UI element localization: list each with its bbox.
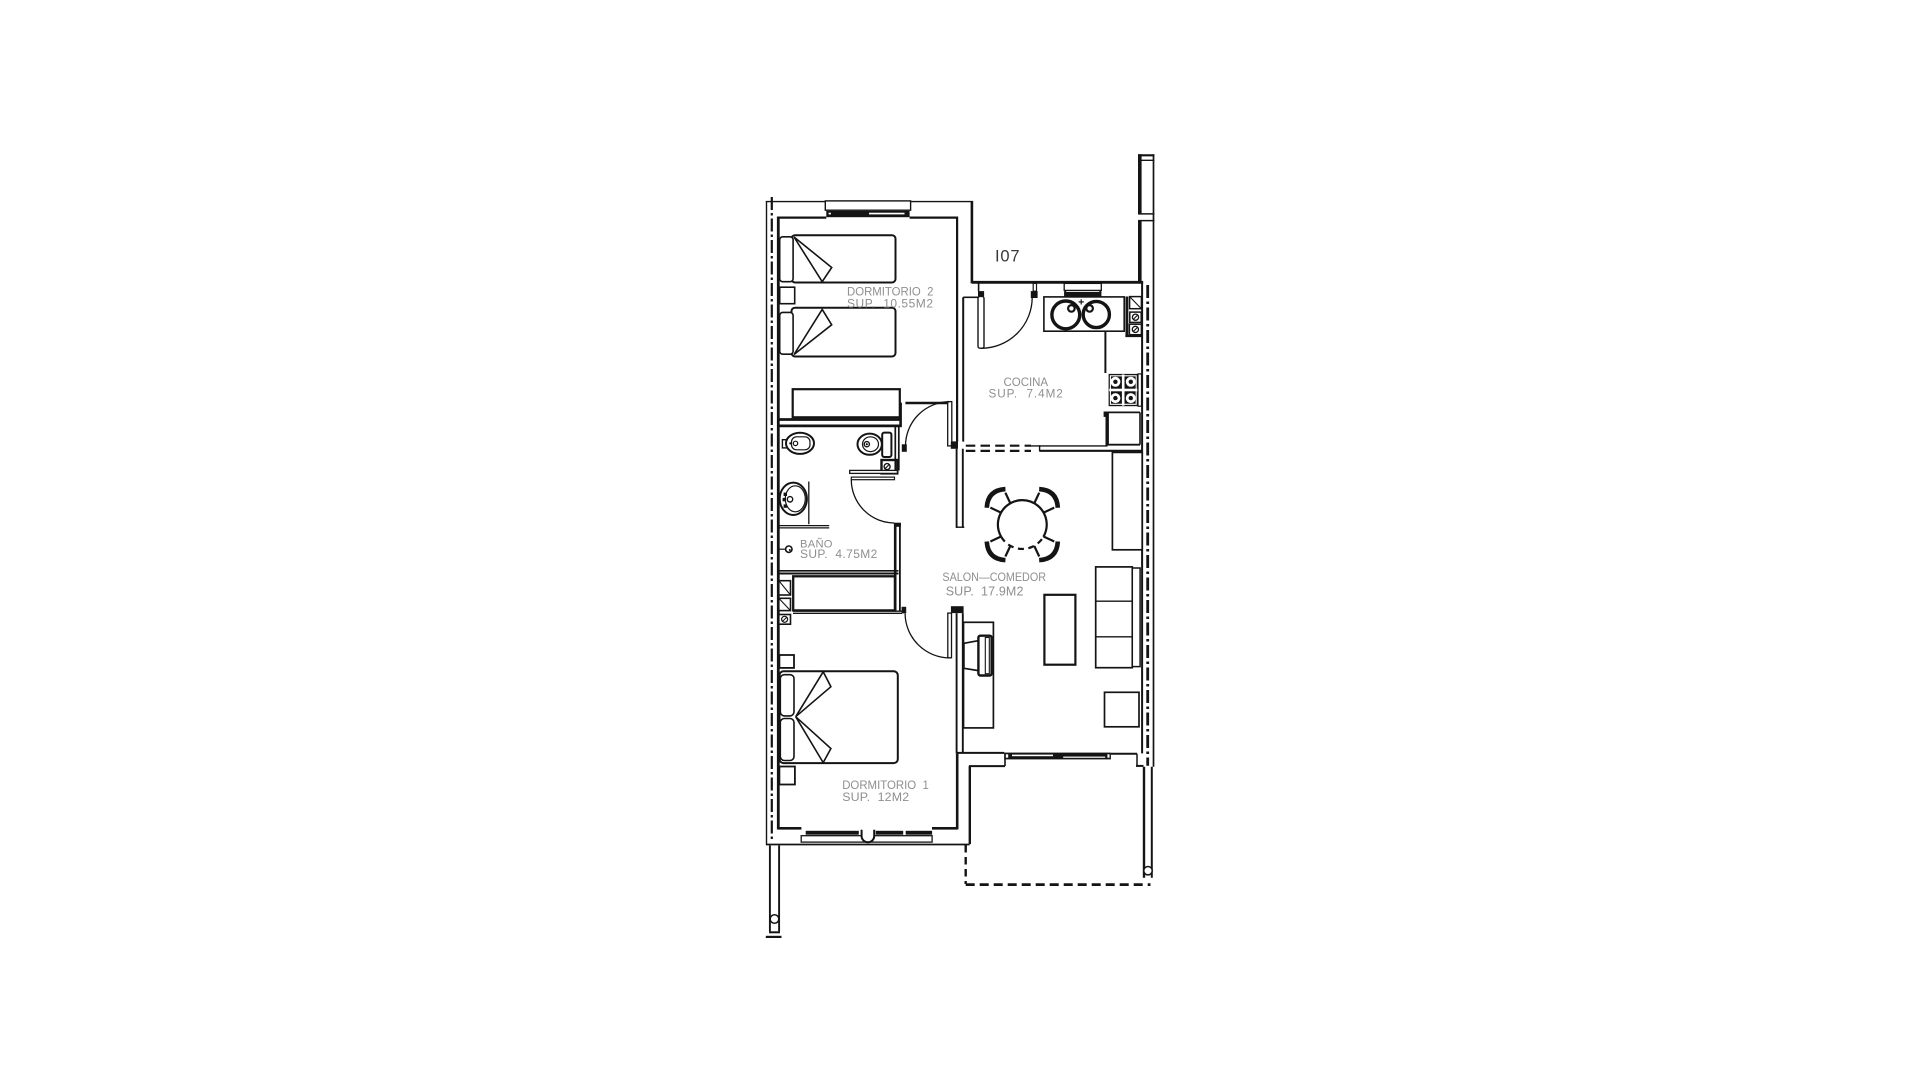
svg-text:SUP. 7.4M2: SUP. 7.4M2 bbox=[989, 388, 1063, 401]
svg-text:SUP. 10.55M2: SUP. 10.55M2 bbox=[847, 297, 933, 311]
svg-text:I07: I07 bbox=[995, 247, 1020, 265]
svg-text:SUP. 12M2: SUP. 12M2 bbox=[842, 790, 909, 804]
svg-text:SALON—COMEDOR: SALON—COMEDOR bbox=[942, 570, 1046, 584]
svg-text:SUP. 4.75M2: SUP. 4.75M2 bbox=[800, 547, 878, 561]
svg-text:SUP. 17.9M2: SUP. 17.9M2 bbox=[946, 585, 1024, 599]
